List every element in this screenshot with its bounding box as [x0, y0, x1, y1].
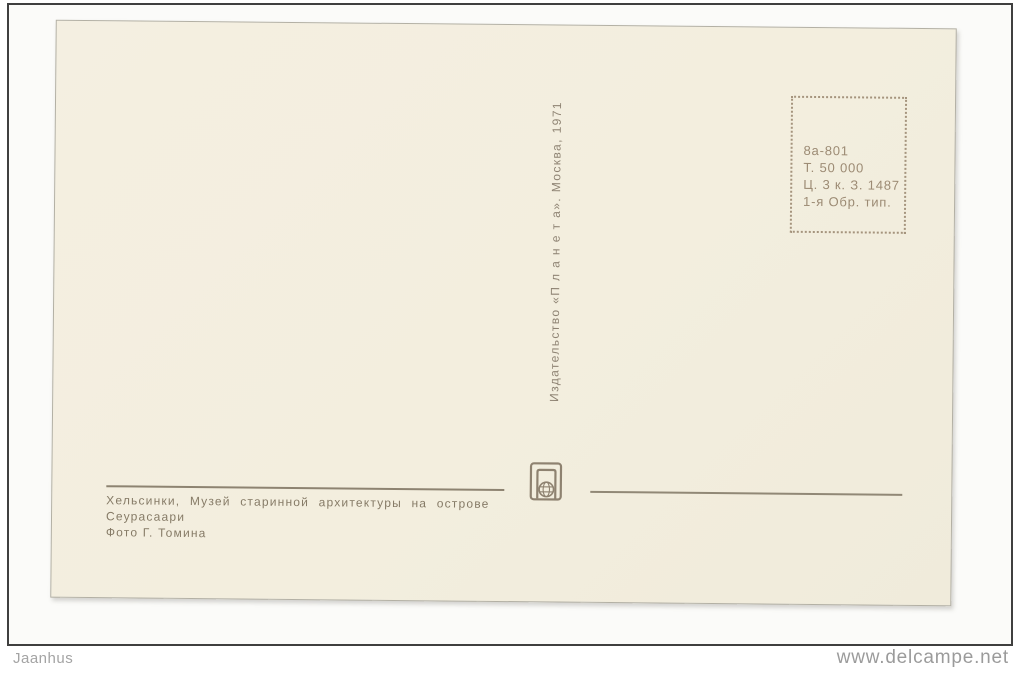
stamp-info-line: 8а-801 — [803, 142, 904, 160]
seller-watermark: Jaanhus — [13, 650, 73, 667]
caption-photo-credit: Фото Г. Томина — [106, 524, 510, 544]
address-divider-line-right — [590, 491, 902, 496]
planeta-globe-logo-icon — [529, 461, 563, 501]
site-watermark: www.delcampe.net — [837, 647, 1009, 669]
postcard-back: 8а-801 Т. 50 000 Ц. 3 к. З. 1487 1-я Обр… — [50, 20, 957, 607]
stamp-info-line: Т. 50 000 — [803, 159, 904, 177]
address-divider-line-left — [106, 485, 504, 491]
postcard-caption: Хельсинки, Музей старинной архитектуры н… — [106, 492, 510, 544]
stamp-info-line: Ц. 3 к. З. 1487 — [803, 176, 904, 194]
stamp-info-line: 1-я Обр. тип. — [803, 193, 904, 211]
stamp-info-box: 8а-801 Т. 50 000 Ц. 3 к. З. 1487 1-я Обр… — [790, 96, 907, 234]
publisher-imprint-vertical: Издательство «П л а н е т а». Москва, 19… — [547, 86, 566, 416]
